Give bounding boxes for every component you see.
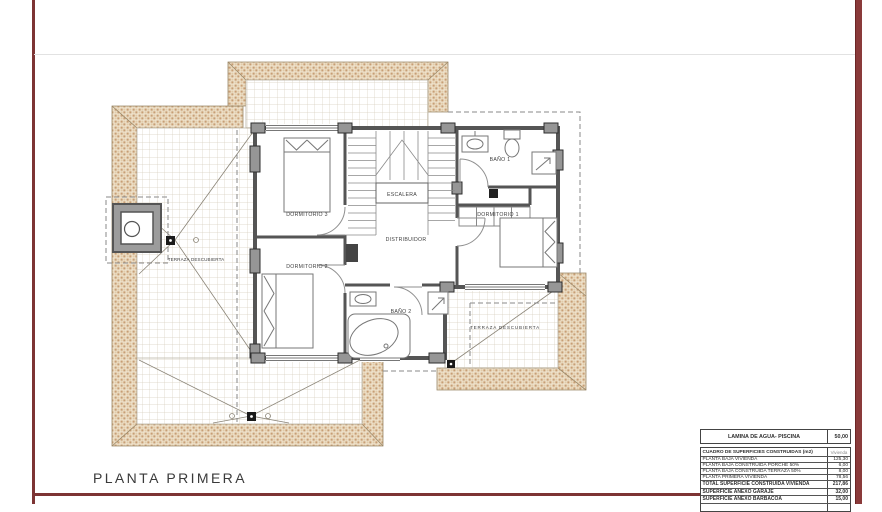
table-header-label: CUADRO DE SUPERFICIES CONSTRUIDAS (m2)	[701, 448, 827, 456]
surface-table-body: CUADRO DE SUPERFICIES CONSTRUIDAS (m2) V…	[700, 447, 851, 512]
duct-shaft	[489, 189, 498, 198]
table-row-barbacoa: SUPERFICIE ANEXO BARBACOA 15,00	[701, 495, 850, 503]
surface-summary-table: LAMINA DE AGUA- PISCINA 50,00 CUADRO DE …	[700, 429, 851, 512]
page-title: PLANTA PRIMERA	[93, 470, 247, 486]
room-label-terraza-izquierda: TERRAZA DESCUBIERTA	[168, 257, 225, 262]
row-value: 15,00	[827, 496, 850, 503]
row-value: 217,86	[827, 481, 850, 488]
room-label-dormitorio-3: DORMITORIO 3	[286, 212, 328, 218]
row-value: 6,00	[827, 463, 850, 468]
room-label-escalera: ESCALERA	[387, 192, 417, 198]
door-bano-1	[460, 159, 488, 187]
table-header-row: CUADRO DE SUPERFICIES CONSTRUIDAS (m2) V…	[701, 448, 850, 456]
toilet-bano-1	[504, 130, 520, 157]
table-header-value: Vivienda	[827, 448, 850, 456]
sink-bano-1	[462, 131, 488, 152]
chimney	[113, 204, 161, 252]
room-label-bano-1: BAÑO 1	[490, 156, 511, 163]
table-row-total: TOTAL SUPERFICIE CONSTRUIDA VIVIENDA 217…	[701, 480, 850, 488]
window-dormitorio-3	[266, 124, 340, 132]
row-label: PLANTA PRIMERA VIVIENDA	[701, 475, 827, 480]
row-label: TOTAL SUPERFICIE CONSTRUIDA VIVIENDA	[701, 481, 827, 488]
bed-dormitorio-3	[284, 138, 330, 212]
row-value: 125,30	[827, 457, 850, 462]
row-label: SUPERFICIE ANEXO BARBACOA	[701, 496, 827, 503]
water-sheet-value: 50,00	[827, 430, 850, 443]
drawing-sheet: { "sheet": { "title": "PLANTA PRIMERA", …	[0, 0, 882, 504]
room-label-bano-2: BAÑO 2	[391, 308, 412, 315]
hall-cabinet	[346, 244, 358, 262]
row-value: 78,56	[827, 475, 850, 480]
room-label-dormitorio-1: DORMITORIO 1	[477, 212, 519, 218]
row-label: SUPERFICIE ANEXO GARAJE	[701, 489, 827, 496]
room-label-distribuidor: DISTRIBUIDOR	[386, 237, 427, 243]
window-dormitorio-2	[266, 354, 340, 362]
shower-bano-1	[532, 152, 556, 174]
table-row: PLANTA BAJA VIVIENDA 125,30	[701, 456, 850, 462]
row-label: PLANTA BAJA CONSTRUIDA TERRAZA 50%	[701, 469, 827, 474]
row-value	[827, 504, 850, 511]
table-row: PLANTA BAJA CONSTRUIDA PORCHE 50% 6,00	[701, 462, 850, 468]
table-row-garaje: SUPERFICIE ANEXO GARAJE 32,00	[701, 488, 850, 496]
water-sheet-row: LAMINA DE AGUA- PISCINA 50,00	[700, 429, 851, 444]
table-row: PLANTA BAJA CONSTRUIDA TERRAZA 50% 8,00	[701, 468, 850, 474]
row-value: 32,00	[827, 489, 850, 496]
window-dormitorio-1	[465, 283, 545, 291]
table-row: PLANTA PRIMERA VIVIENDA 78,56	[701, 474, 850, 480]
water-sheet-label: LAMINA DE AGUA- PISCINA	[701, 430, 827, 443]
row-value: 8,00	[827, 469, 850, 474]
bed-dormitorio-1	[500, 218, 557, 267]
row-label: PLANTA BAJA VIVIENDA	[701, 457, 827, 462]
room-label-terraza-derecha: TERRAZA DESCUBIERTA	[470, 325, 540, 330]
bathtub-bano-2	[344, 312, 410, 362]
shower-bano-2	[428, 292, 448, 314]
sink-bano-2	[350, 292, 376, 306]
bed-dormitorio-2	[262, 274, 313, 348]
room-label-dormitorio-2: DORMITORIO 2	[286, 264, 328, 270]
row-label: PLANTA BAJA CONSTRUIDA PORCHE 50%	[701, 463, 827, 468]
row-label	[701, 504, 827, 511]
